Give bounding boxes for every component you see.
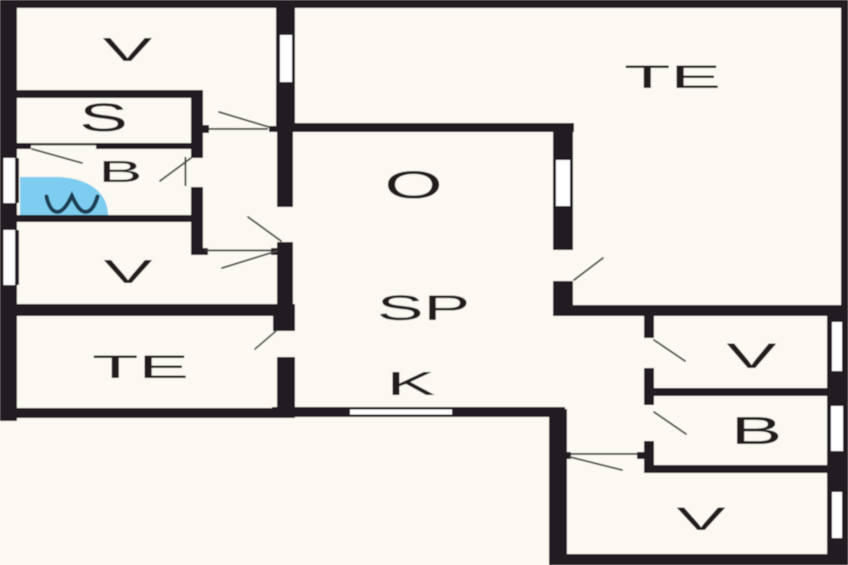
svg-text:V: V <box>103 32 153 69</box>
svg-text:O: O <box>384 163 442 206</box>
svg-text:TE: TE <box>92 349 189 385</box>
svg-text:SP: SP <box>377 288 470 327</box>
svg-text:S: S <box>79 96 128 140</box>
svg-text:B: B <box>98 154 142 188</box>
svg-text:K: K <box>386 365 435 402</box>
svg-text:V: V <box>726 337 776 376</box>
svg-text:V: V <box>676 501 725 537</box>
svg-text:B: B <box>731 409 783 453</box>
svg-text:V: V <box>103 253 152 290</box>
svg-text:TE: TE <box>624 59 721 95</box>
